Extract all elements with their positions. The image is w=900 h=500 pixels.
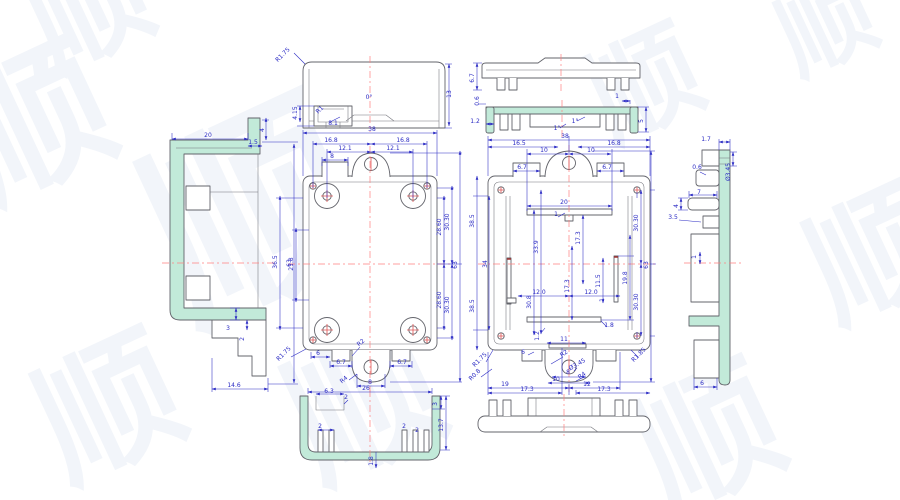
dimension-labels: R1.750°4.15R18.113201.54633214.63816.812… — [204, 46, 732, 466]
drawing-sheet: R1.750°4.15R18.113201.54633214.63816.812… — [0, 0, 900, 500]
view-lid-sections-dim-5: 1° — [572, 118, 579, 125]
view-base-section-dim-8: 1.8 — [368, 456, 375, 466]
view-lid-inside-dim-26: 11 — [560, 336, 568, 343]
view-lid-side — [294, 53, 452, 132]
view-base-section-dim-7: 2 — [415, 427, 419, 434]
view-lid-inside-dim-4: 10 — [587, 147, 595, 154]
view-base-top-dim-10: 30.30 — [444, 213, 451, 230]
view-side-profile-left-dim-5: 2 — [239, 337, 246, 341]
view-lid-inside-dim-0: 38 — [561, 133, 569, 140]
view-base-top-dim-7: 21.8 — [288, 257, 295, 271]
view-lid-sections-dim-4: 5 — [638, 119, 645, 123]
view-base-top-dim-13: 6 — [316, 350, 320, 357]
view-lid-sections-dim-6: 1° — [554, 125, 561, 132]
view-lid-side-dim-1: 0° — [366, 94, 373, 101]
view-lid-inside-dim-18: 20 — [560, 199, 568, 206]
view-lid-inside-dim-38: 17.3 — [520, 386, 534, 393]
view-lid-inside-dim-10: 33.9 — [533, 240, 540, 254]
view-lid-inside-dim-17: 63 — [643, 261, 650, 269]
view-side-profile-right-dim-1: 0.6 — [692, 164, 702, 171]
view-base-section-dim-1: 6.3 — [324, 388, 334, 395]
view-lid-inside-dim-23: 1 — [599, 298, 606, 302]
view-lid-inside-dim-37: 12 — [583, 381, 591, 388]
view-base-top-dim-14: 6.7 — [336, 359, 346, 366]
view-base-section — [300, 388, 450, 468]
view-lid-inside-dim-25: 1.2 — [534, 331, 541, 341]
view-lid-side-dim-0: R1.75 — [274, 46, 291, 63]
view-lid-inside-dim-14: 19.8 — [622, 271, 629, 285]
view-side-profile-right-dim-6: 1 — [691, 255, 698, 259]
view-lid-inside-dim-11: 17.3 — [575, 231, 582, 245]
view-base-top-dim-12: 63 — [452, 261, 459, 269]
view-side-profile-right-dim-3: 7 — [697, 189, 701, 196]
view-side-profile-right-dim-7: 6 — [700, 380, 704, 387]
view-base-section-dim-4: 13.7 — [438, 418, 445, 432]
view-base-section-dim-3: 3 — [432, 402, 439, 406]
view-lid-inside-dim-8: 38.5 — [469, 299, 476, 313]
view-lid-sections-dim-0: 6.7 — [469, 73, 476, 83]
view-base-top-dim-4: 16.8 — [396, 137, 410, 144]
view-side-profile-right-dim-4: 4 — [673, 204, 680, 208]
view-lid-inside-dim-34: 8 — [566, 369, 570, 376]
view-lid-inside-dim-2: 16.8 — [607, 140, 621, 147]
view-lid-inside-dim-27: 6 — [521, 349, 525, 356]
view-lid-sections-dim-2: 1.2 — [470, 118, 480, 125]
view-lid-side-dim-5: 13 — [446, 90, 453, 98]
view-lid-inside-dim-1: 16.5 — [512, 140, 526, 147]
view-base-section-dim-5: 2 — [318, 423, 322, 430]
view-lid-inside-dim-9: 34 — [482, 260, 489, 268]
view-lid-inside-dim-31: R1.75 — [471, 351, 488, 368]
view-lid-side-dim-4: 8.1 — [328, 120, 338, 127]
view-lid-inside-dim-32: R0.8 — [468, 367, 483, 382]
view-lid-inside-dim-3: 10 — [540, 147, 548, 154]
view-base-top-dim-1: 16.8 — [324, 137, 338, 144]
view-base-top-dim-9: 28.60 — [436, 291, 443, 308]
view-lid-inside-dim-36: 19 — [501, 381, 509, 388]
view-base-top-dim-3: 12.1 — [386, 145, 400, 152]
view-side-profile-right-dim-2: Ø3.45 — [725, 163, 732, 181]
view-lid-sections-dim-1: 0.6 — [474, 96, 481, 106]
view-lid-sections-dim-3: 1 — [615, 93, 619, 100]
view-base-top-dim-2: 12.1 — [338, 145, 352, 152]
view-lid-side-dim-2: 4.15 — [292, 106, 299, 120]
view-side-profile-left-dim-2: 4 — [259, 128, 266, 132]
view-side-profile-right-dim-0: 1.7 — [701, 136, 711, 143]
view-base-top-dim-19: R1.75 — [275, 345, 292, 362]
view-base-section-dim-6: 2 — [402, 423, 406, 430]
view-side-profile-left-dim-6: 14.6 — [227, 382, 241, 389]
view-lid-inside-dim-35: 10 — [552, 376, 560, 383]
view-base-top-dim-11: 30.30 — [444, 296, 451, 313]
view-lid-sections — [473, 54, 649, 137]
view-base-section-dim-0: 26 — [362, 385, 370, 392]
view-base-top-dim-8: 28.60 — [436, 218, 443, 235]
view-lid-inside-dim-21: 12.0 — [584, 289, 598, 296]
view-lid-inside-dim-12: 17.3 — [564, 279, 571, 293]
view-lid-inside-dim-7: 38.5 — [469, 214, 476, 228]
view-lid-inside-dim-24: 1.8 — [604, 322, 614, 329]
view-base-section-dim-2: 2 — [344, 394, 348, 401]
view-lid-inside-dim-22: 30.8 — [526, 295, 533, 309]
view-side-profile-right-dim-5: 3.5 — [668, 214, 678, 221]
view-lid-inside-dim-13: 11.5 — [595, 274, 602, 288]
view-base-top — [276, 130, 462, 392]
view-base-top-dim-18: R4 — [339, 374, 350, 385]
view-lid-section-bottom — [478, 394, 650, 436]
view-side-profile-right — [678, 139, 742, 390]
view-side-profile-left-dim-4: 3 — [226, 325, 230, 332]
view-lid-inside-dim-39: 17.3 — [597, 386, 611, 393]
view-side-profile-left-dim-1: 1.5 — [248, 139, 258, 146]
view-side-profile-left-dim-0: 20 — [204, 132, 212, 139]
view-lid-inside-dim-16: 30.30 — [633, 293, 640, 310]
view-side-profile-left — [162, 118, 298, 392]
view-lid-inside-dim-19: 1 — [554, 211, 558, 218]
view-lid-inside-dim-6: 6.7 — [602, 164, 612, 171]
view-base-top-dim-6: 36.5 — [272, 255, 279, 269]
view-base-top-dim-15: 6.7 — [397, 359, 407, 366]
view-base-top-dim-5: 8 — [330, 153, 334, 160]
view-lid-inside-dim-20: 12.0 — [532, 289, 546, 296]
view-lid-inside-dim-5: 6.7 — [517, 164, 527, 171]
view-base-top-dim-0: 38 — [368, 126, 376, 133]
view-lid-inside-dim-15: 30.30 — [633, 214, 640, 231]
cad-drawing-canvas: 顺顺顺顺顺顺顺顺顺 — [0, 0, 900, 500]
